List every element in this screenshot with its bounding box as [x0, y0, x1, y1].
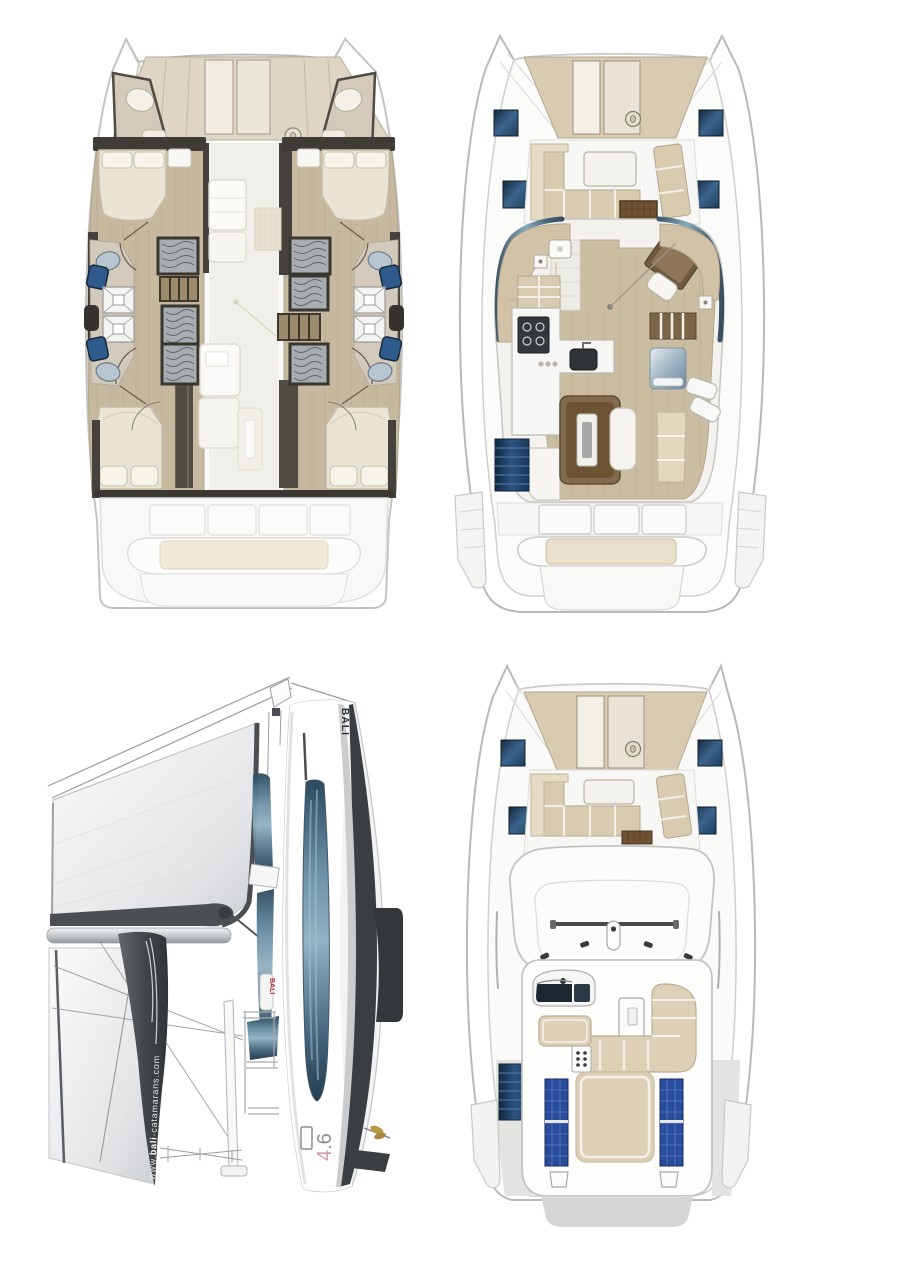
svg-text:BALI: BALI — [268, 978, 275, 994]
svg-text:BALI: BALI — [339, 708, 350, 736]
svg-text:4.6: 4.6 — [314, 1133, 336, 1161]
